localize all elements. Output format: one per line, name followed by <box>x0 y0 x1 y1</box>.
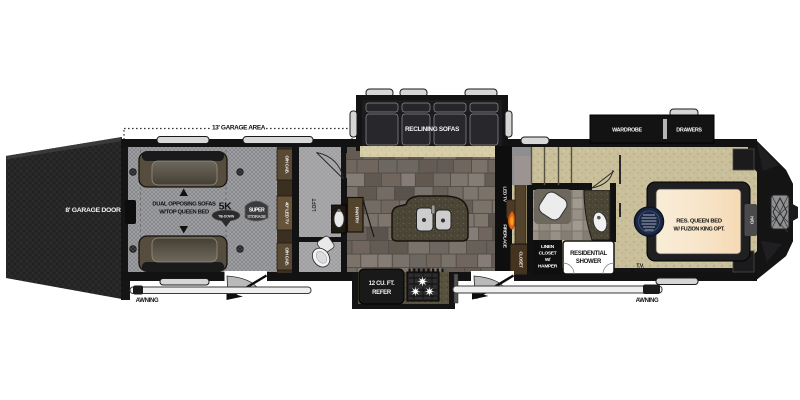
svg-text:LINEN: LINEN <box>541 244 555 250</box>
svg-text:CLOSET: CLOSET <box>539 251 557 257</box>
svg-text:O/H CAB.: O/H CAB. <box>285 247 290 265</box>
svg-text:W/ FUZION KING OPT.: W/ FUZION KING OPT. <box>674 227 726 233</box>
svg-text:LOFT: LOFT <box>312 198 318 211</box>
svg-text:AWNING: AWNING <box>136 298 159 304</box>
svg-text:WARDROBE: WARDROBE <box>612 128 642 134</box>
svg-text:W/TOP QUEEN BED: W/TOP QUEEN BED <box>159 210 209 216</box>
svg-text:T.V.: T.V. <box>636 264 644 270</box>
svg-text:CLOSET: CLOSET <box>519 251 524 268</box>
svg-text:13' GARAGE AREA: 13' GARAGE AREA <box>212 125 266 132</box>
svg-text:O/H CAB.: O/H CAB. <box>285 155 290 173</box>
svg-text:H/O: H/O <box>749 216 755 224</box>
svg-text:12 CU. FT.: 12 CU. FT. <box>369 281 395 287</box>
svg-text:REFER: REFER <box>372 290 392 296</box>
svg-text:SHOWER: SHOWER <box>576 259 602 265</box>
svg-text:DUAL OPPOSING SOFAS: DUAL OPPOSING SOFAS <box>152 202 216 208</box>
svg-text:RECLINING SOFAS: RECLINING SOFAS <box>405 126 460 133</box>
svg-text:PANTRY: PANTRY <box>355 207 360 224</box>
svg-text:SUPER: SUPER <box>249 208 265 214</box>
svg-text:FIREPLACE: FIREPLACE <box>503 224 508 248</box>
svg-text:40" LED TV: 40" LED TV <box>285 202 290 225</box>
svg-text:AWNING: AWNING <box>636 298 659 304</box>
svg-text:STORAGE: STORAGE <box>247 214 266 219</box>
svg-text:RESIDENTIAL: RESIDENTIAL <box>570 251 607 257</box>
svg-text:RES. QUEEN BED: RES. QUEEN BED <box>676 219 722 225</box>
svg-text:LED TV: LED TV <box>502 186 508 202</box>
svg-text:DRAWERS: DRAWERS <box>676 128 702 134</box>
svg-text:HAMPER: HAMPER <box>538 264 558 270</box>
svg-text:8' GARAGE DOOR: 8' GARAGE DOOR <box>65 207 121 214</box>
svg-text:TIE-DOWN: TIE-DOWN <box>218 215 234 219</box>
